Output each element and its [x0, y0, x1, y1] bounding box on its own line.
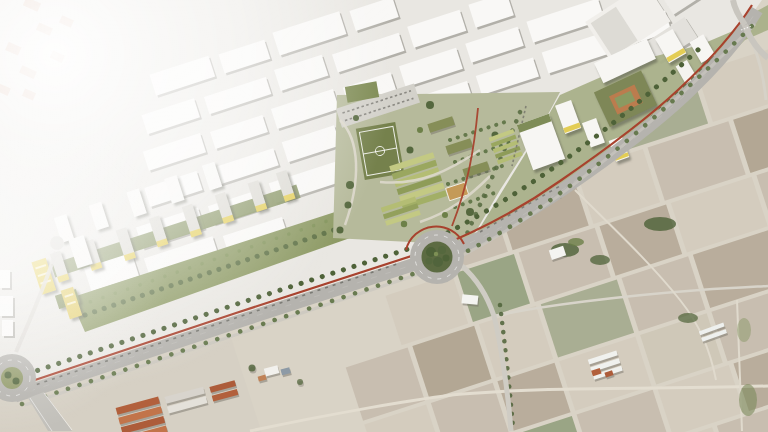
- small-city-roundabout: [50, 236, 64, 250]
- masterplan-rendering: [0, 0, 768, 432]
- white-warehouse: [462, 294, 479, 305]
- aerial-view: [0, 0, 768, 432]
